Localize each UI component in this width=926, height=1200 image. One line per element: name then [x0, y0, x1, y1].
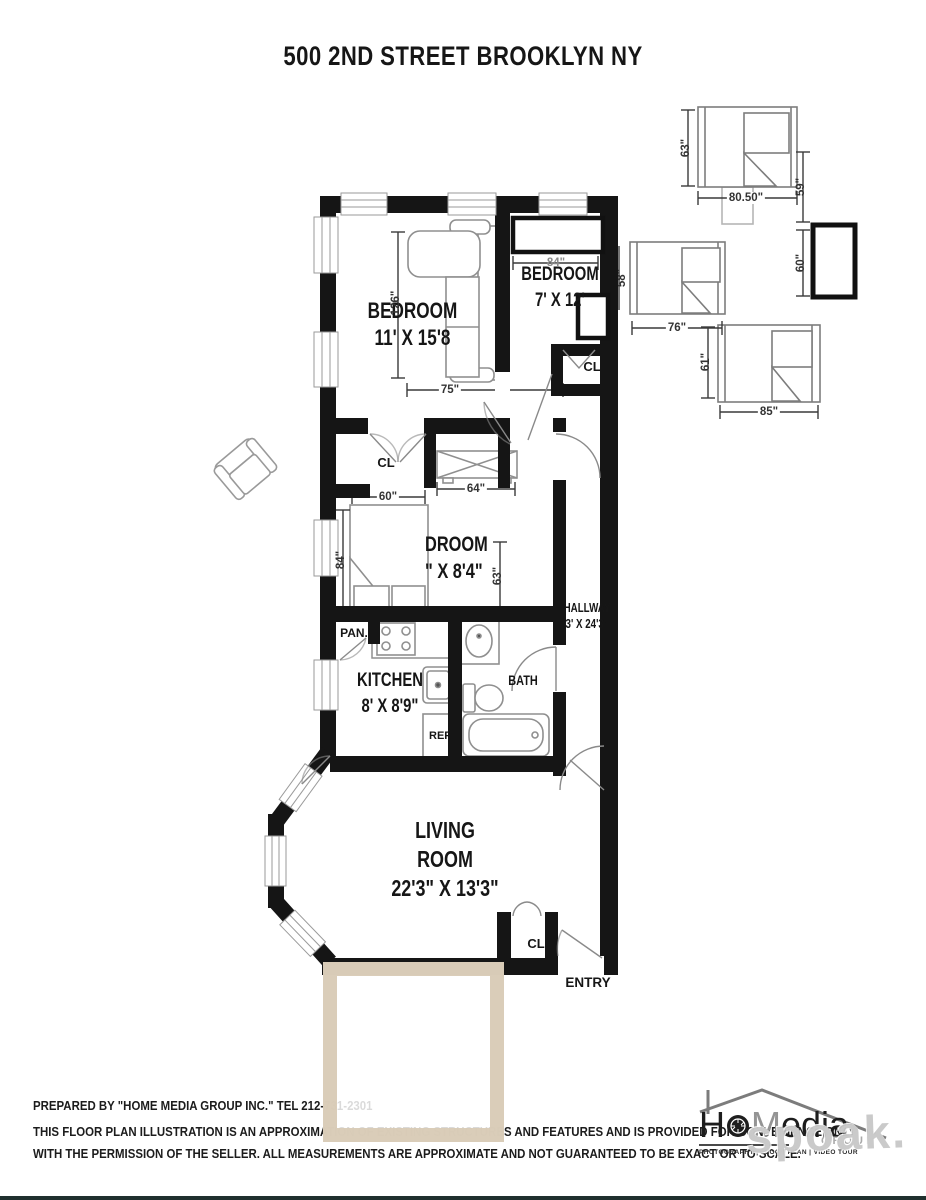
kitchen-label: KITCHEN 8' X 8'9" — [351, 668, 429, 720]
dim-bed3-length: 84" — [335, 549, 347, 571]
dim-bed3-width: 60" — [377, 491, 399, 503]
dim-cabinet-height: 60" — [795, 252, 807, 274]
dim-bedroom1-width: 75" — [439, 384, 461, 396]
bedroom1-dims: 11' X 15'8 — [348, 324, 477, 351]
stove-icon — [377, 623, 415, 655]
bed-icon-bedroom3 — [350, 505, 428, 613]
logo-letter-h: H — [699, 1104, 725, 1145]
cabinet-diagram — [813, 225, 855, 297]
masked-area-box — [323, 962, 504, 1142]
bathtub-icon — [463, 714, 549, 756]
dim-dresser-width: 64" — [465, 483, 487, 495]
living-room-label: LIVING ROOM 22'3" X 13'3" — [390, 816, 499, 903]
spoak-watermark: spoak. — [745, 1103, 908, 1164]
bath-label: BATH — [501, 672, 545, 689]
floor-plan-page: 500 2ND STREET BROOKLYN NY — [0, 0, 926, 1200]
bedroom1-name: BEDROOM — [348, 297, 477, 324]
footer-disclaimer-2: WITH THE PERMISSION OF THE SELLER. ALL M… — [33, 1146, 801, 1161]
living-dims: 22'3" X 13'3" — [390, 874, 499, 903]
fridge-label: REF — [424, 730, 456, 743]
bottom-border-line — [0, 1196, 926, 1200]
hallway-dims: 3' X 24'3" — [563, 616, 611, 632]
closet-label-living: CL — [521, 936, 551, 952]
bedroom3-dims: " X 8'4" — [425, 558, 488, 585]
dim-bedC-height: 61" — [700, 351, 712, 373]
dim-bedA-width: 80.50" — [727, 192, 765, 204]
living-line1: LIVING — [390, 816, 499, 845]
living-line2: ROOM — [390, 845, 499, 874]
closet-label-bedroom2: CL — [577, 359, 607, 375]
dim-bedB-width: 76" — [666, 322, 688, 334]
dresser-icon-bedroom2 — [513, 218, 603, 252]
footer-prepared-by: PREPARED BY "HOME MEDIA GROUP INC." TEL … — [33, 1098, 373, 1113]
toilet-icon — [463, 684, 503, 712]
armchair-icon — [211, 435, 278, 501]
dim-gap-right: 59" — [795, 176, 807, 198]
bath-sink-icon — [461, 620, 499, 664]
hallway-label: HALLWAY 3' X 24'3" — [563, 600, 611, 632]
bedroom2-name: BEDROOM — [517, 262, 603, 288]
bed-diagram-a — [698, 107, 797, 224]
bedroom3-label: DROOM " X 8'4" — [425, 531, 488, 585]
dim-bedC-width: 85" — [758, 406, 780, 418]
closet-label-bedroom3: CL — [371, 455, 401, 471]
bed-diagram-c — [718, 325, 820, 402]
dim-bedA-height: 63" — [680, 137, 692, 159]
bedroom2-dims: 7' X 12' — [517, 288, 603, 314]
dim-bedroom1-length: 126" — [390, 289, 402, 318]
page-title: 500 2ND STREET BROOKLYN NY — [83, 40, 842, 72]
hallway-name: HALLWAY — [563, 600, 611, 616]
pantry-label: PAN. — [336, 626, 372, 640]
bed-diagram-b — [630, 242, 725, 314]
kitchen-dims: 8' X 8'9" — [351, 694, 429, 720]
entry-label: ENTRY — [560, 975, 616, 991]
bedroom1-label: BEDROOM 11' X 15'8 — [348, 297, 477, 351]
bedroom3-name: DROOM — [425, 531, 488, 558]
dim-closet3-height: 63" — [492, 565, 504, 587]
kitchen-name: KITCHEN — [351, 668, 429, 694]
bedroom2-label: BEDROOM 7' X 12' — [517, 262, 603, 314]
